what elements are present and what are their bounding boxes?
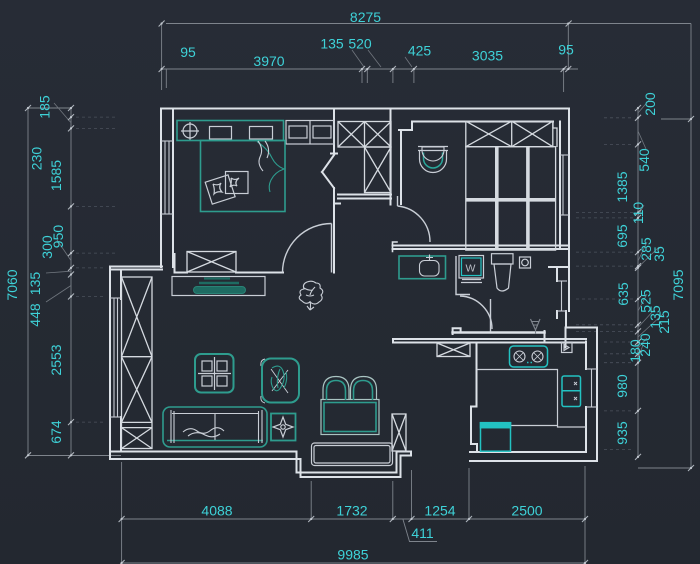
svg-text:2553: 2553: [48, 344, 64, 375]
svg-text:425: 425: [408, 43, 432, 59]
svg-text:135: 135: [27, 272, 43, 296]
svg-text:520: 520: [348, 36, 372, 52]
svg-text:4088: 4088: [201, 503, 232, 519]
svg-text:935: 935: [614, 421, 630, 445]
svg-text:980: 980: [614, 374, 630, 398]
svg-text:300: 300: [39, 235, 55, 259]
svg-text:8275: 8275: [350, 9, 381, 25]
svg-text:9985: 9985: [337, 547, 368, 563]
svg-text:35: 35: [651, 246, 667, 262]
svg-text:695: 695: [614, 224, 630, 248]
svg-text:95: 95: [558, 42, 574, 58]
svg-text:3035: 3035: [472, 48, 503, 64]
svg-text:3970: 3970: [253, 53, 284, 69]
svg-text:7095: 7095: [670, 269, 686, 300]
svg-text:215: 215: [656, 310, 672, 334]
svg-text:135: 135: [320, 36, 344, 52]
svg-text:674: 674: [48, 420, 64, 444]
svg-text:95: 95: [180, 44, 196, 60]
svg-text:411: 411: [411, 525, 434, 541]
svg-text:110: 110: [630, 202, 646, 225]
svg-text:W: W: [466, 263, 476, 275]
svg-text:448: 448: [27, 303, 43, 327]
svg-text:7060: 7060: [4, 269, 20, 300]
svg-text:1385: 1385: [614, 171, 630, 202]
svg-text:230: 230: [29, 147, 45, 171]
svg-text:180: 180: [627, 339, 643, 363]
svg-text:635: 635: [615, 282, 631, 306]
svg-text:540: 540: [636, 148, 652, 172]
svg-text:2500: 2500: [511, 503, 542, 519]
svg-text:200: 200: [642, 92, 658, 116]
svg-text:1254: 1254: [424, 503, 455, 519]
svg-text:1732: 1732: [336, 503, 367, 519]
svg-text:185: 185: [37, 95, 53, 119]
svg-text:1585: 1585: [48, 160, 64, 191]
